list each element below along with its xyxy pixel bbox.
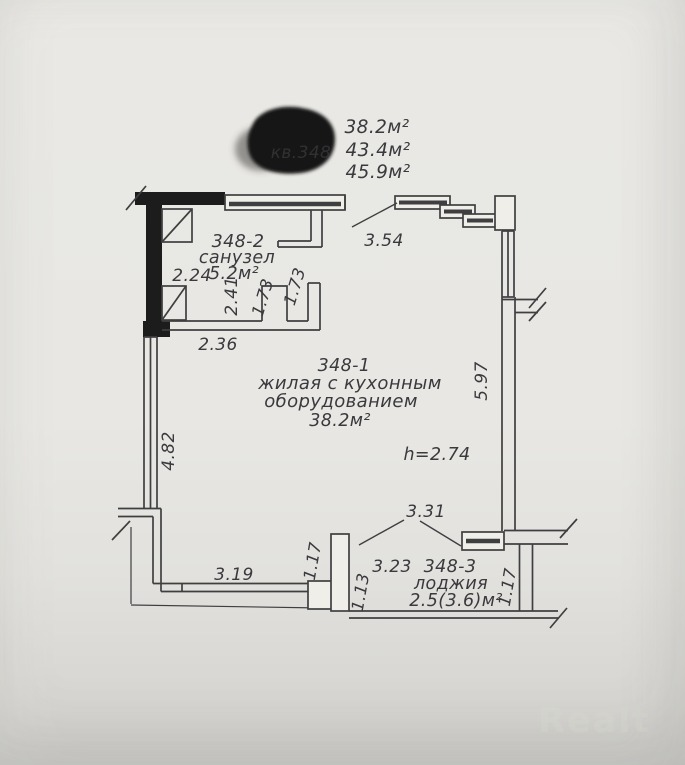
dim-entry-wall: 3.54	[364, 231, 403, 251]
area-total-3: 45.9м²	[346, 162, 411, 183]
room-living-name2: оборудованием	[264, 391, 418, 412]
dim-loggia-opening: 3.31	[406, 502, 445, 522]
dim-window-width: 3.19	[214, 565, 253, 585]
area-annotations: 38.2м² 43.4м² 45.9м²	[345, 117, 411, 183]
ceiling-height: h=2.74	[403, 445, 470, 465]
dim-pier: 1.17	[300, 540, 325, 581]
redaction-blob: кв.348	[235, 107, 335, 174]
room-living-area: 38.2м²	[309, 411, 371, 431]
dim-loggia-left: 1.13	[348, 572, 373, 613]
wall-top-banded	[225, 195, 345, 210]
dim-left-wall: 4.82	[159, 431, 179, 470]
dim-loggia-inner-width: 3.23	[372, 557, 411, 577]
shaft-boxes	[162, 209, 192, 320]
dim-bath-inner: 2.41	[222, 276, 242, 315]
floor-plan-svg: кв.348 38.2м² 43.4м² 45.9м²	[0, 0, 685, 765]
window-bottom	[153, 581, 332, 609]
redaction-ink	[248, 107, 335, 174]
room-loggia-area: 2.5(3.6)м²	[409, 591, 503, 611]
bathroom-niche	[278, 210, 322, 247]
dim-bath-width: 2.36	[198, 335, 237, 355]
dim-loggia-right: 1.17	[495, 566, 520, 607]
pier-column	[308, 581, 332, 609]
dim-tick	[112, 521, 130, 540]
dim-door-b: 1.73	[280, 265, 309, 307]
window-right	[502, 231, 514, 297]
dim-right-wall: 5.97	[472, 361, 492, 400]
wall-topright-stepped	[395, 196, 515, 230]
floor-plan-photo: кв.348 38.2м² 43.4м² 45.9м²	[0, 0, 685, 765]
realt-watermark-logo: Realt	[538, 701, 651, 741]
wall-right	[502, 288, 546, 531]
corner-bottom-left	[112, 509, 322, 609]
window-left	[144, 337, 157, 508]
dim-tick	[560, 519, 577, 538]
redacted-apartment-number: кв.348	[271, 143, 332, 163]
area-total-2: 43.4м²	[346, 140, 411, 161]
area-total-1: 38.2м²	[345, 117, 410, 138]
dim-bath-left: 2.24	[172, 266, 211, 286]
